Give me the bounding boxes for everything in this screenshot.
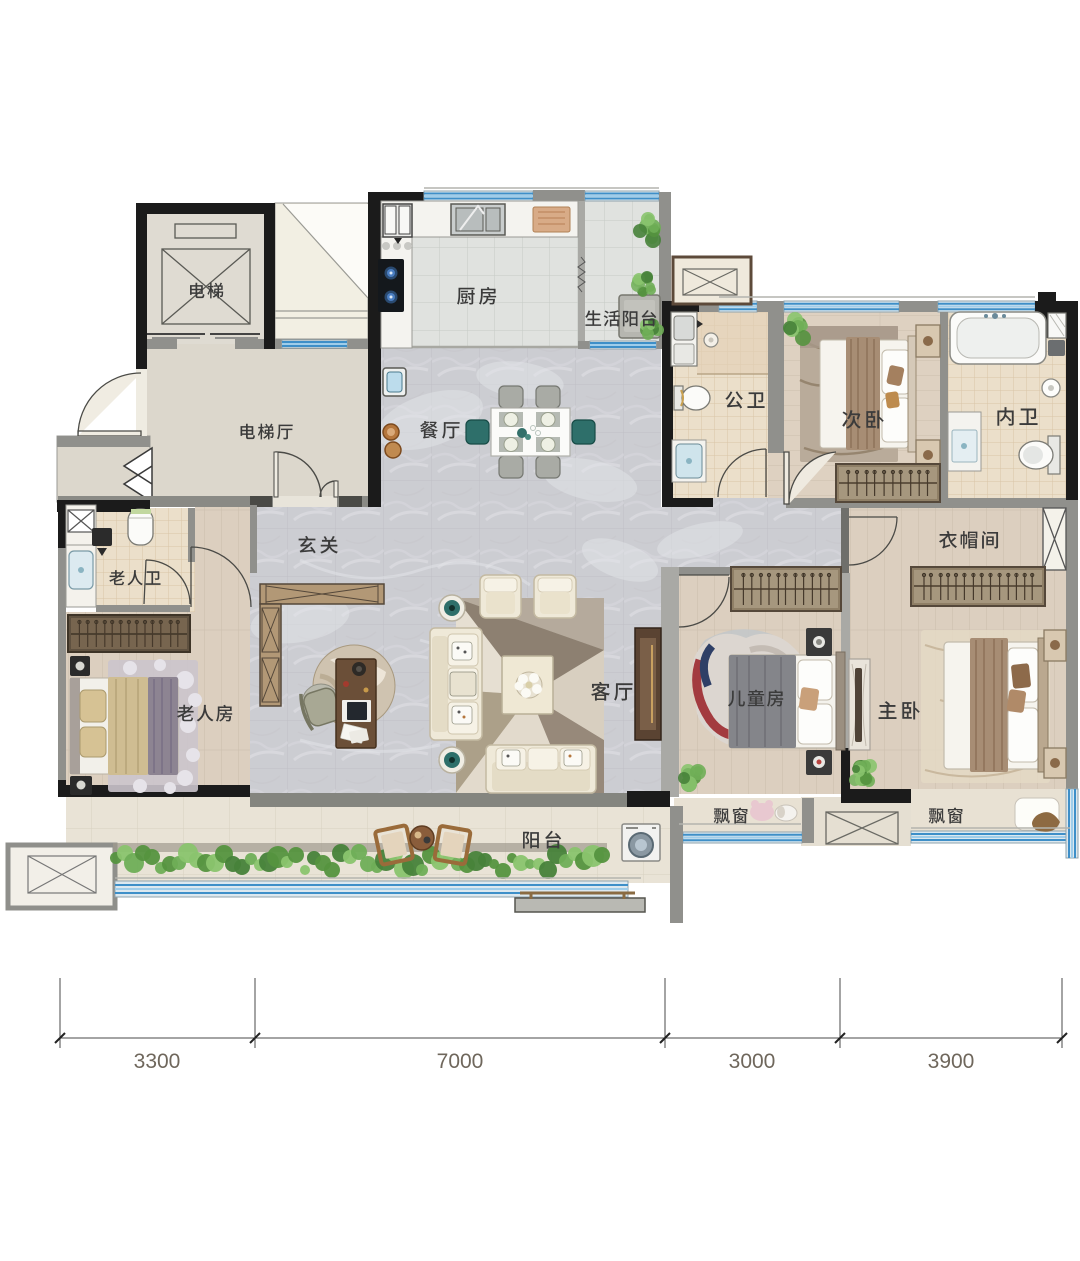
svg-text:3300: 3300 — [134, 1050, 181, 1073]
svg-text:3000: 3000 — [729, 1050, 776, 1073]
svg-text:3900: 3900 — [928, 1050, 975, 1073]
svg-text:7000: 7000 — [437, 1050, 484, 1073]
